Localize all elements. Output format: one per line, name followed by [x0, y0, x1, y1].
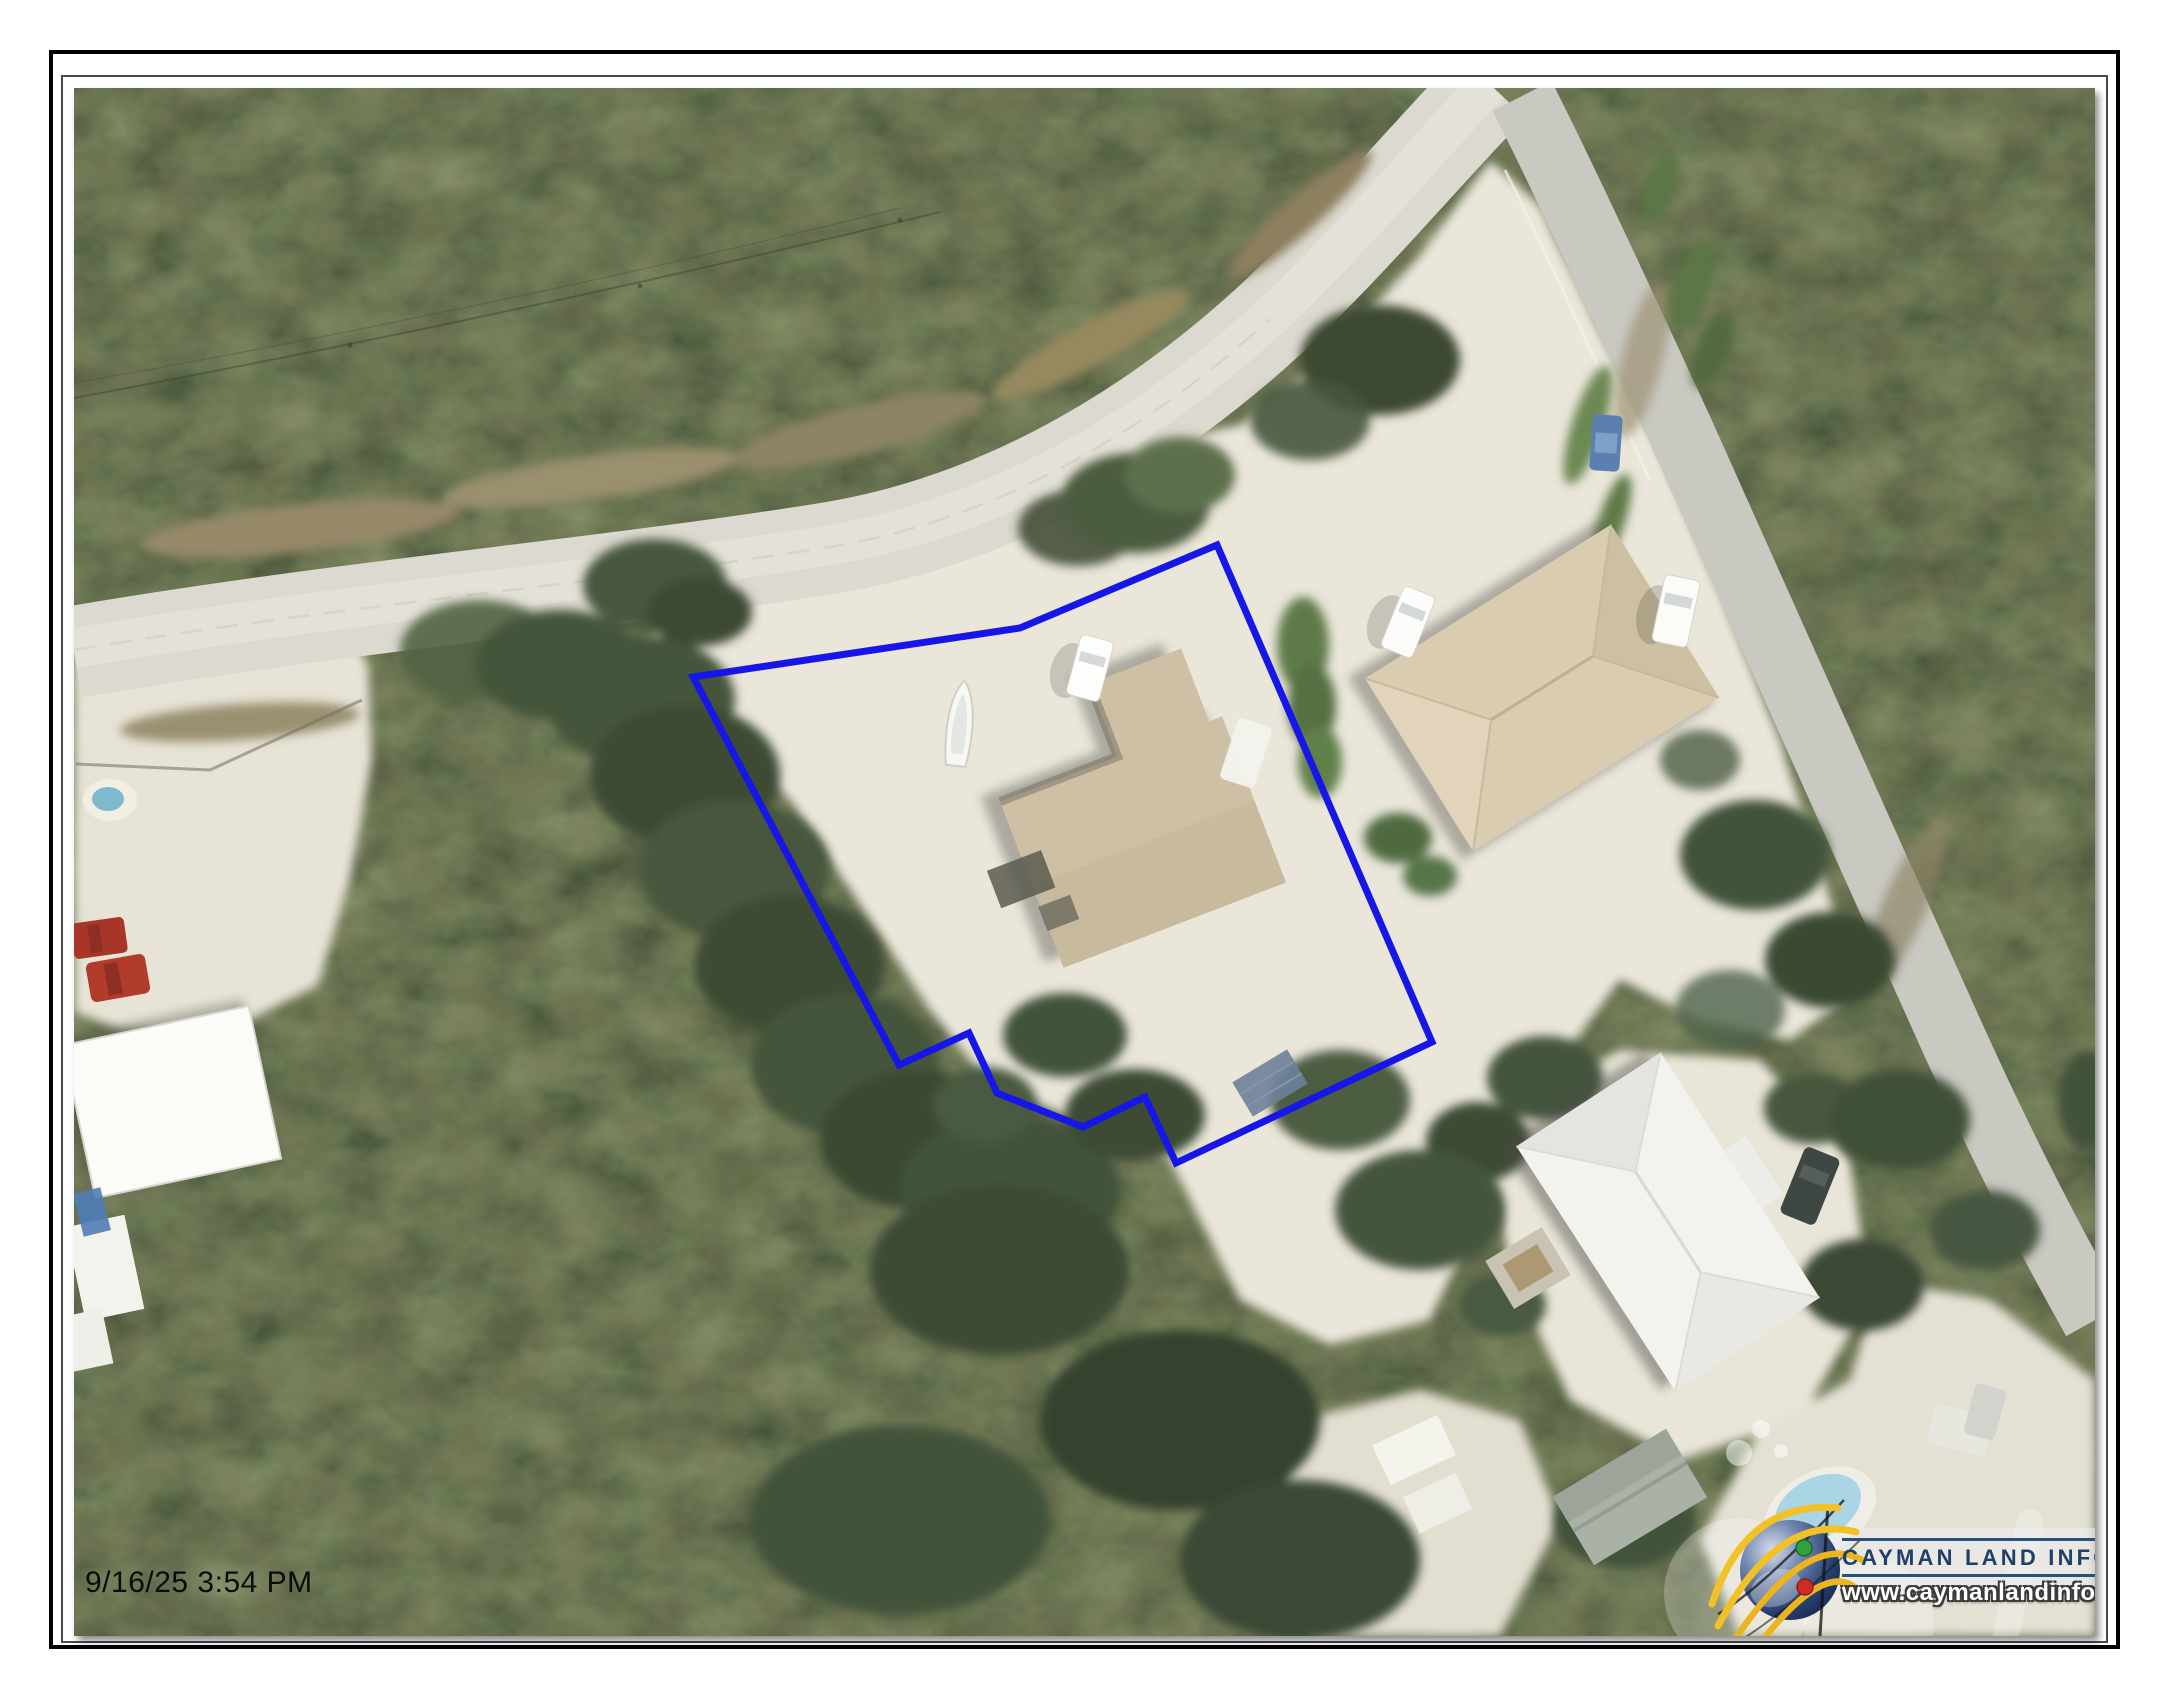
logo-url: www.caymanlandinfo.ky — [1842, 1579, 2095, 1607]
logo-rule-bottom — [1842, 1574, 2095, 1577]
red-car — [74, 916, 128, 959]
cayman-land-info-logo: CAYMAN LAND INFO www.caymanlandinfo.ky — [1705, 1485, 2095, 1636]
timestamp: 9/16/25 3:54 PM — [85, 1566, 313, 1600]
aerial-scene — [74, 88, 2095, 1636]
aerial-map-image: 9/16/25 3:54 PM CAYMAN LAND INFO www.cay… — [74, 88, 2095, 1636]
blue-car — [1589, 414, 1623, 472]
small-pool — [92, 787, 124, 811]
logo-text-block: CAYMAN LAND INFO www.caymanlandinfo.ky — [1842, 1538, 2095, 1607]
logo-title: CAYMAN LAND INFO — [1842, 1545, 2095, 1571]
logo-rule-top — [1842, 1538, 2095, 1541]
